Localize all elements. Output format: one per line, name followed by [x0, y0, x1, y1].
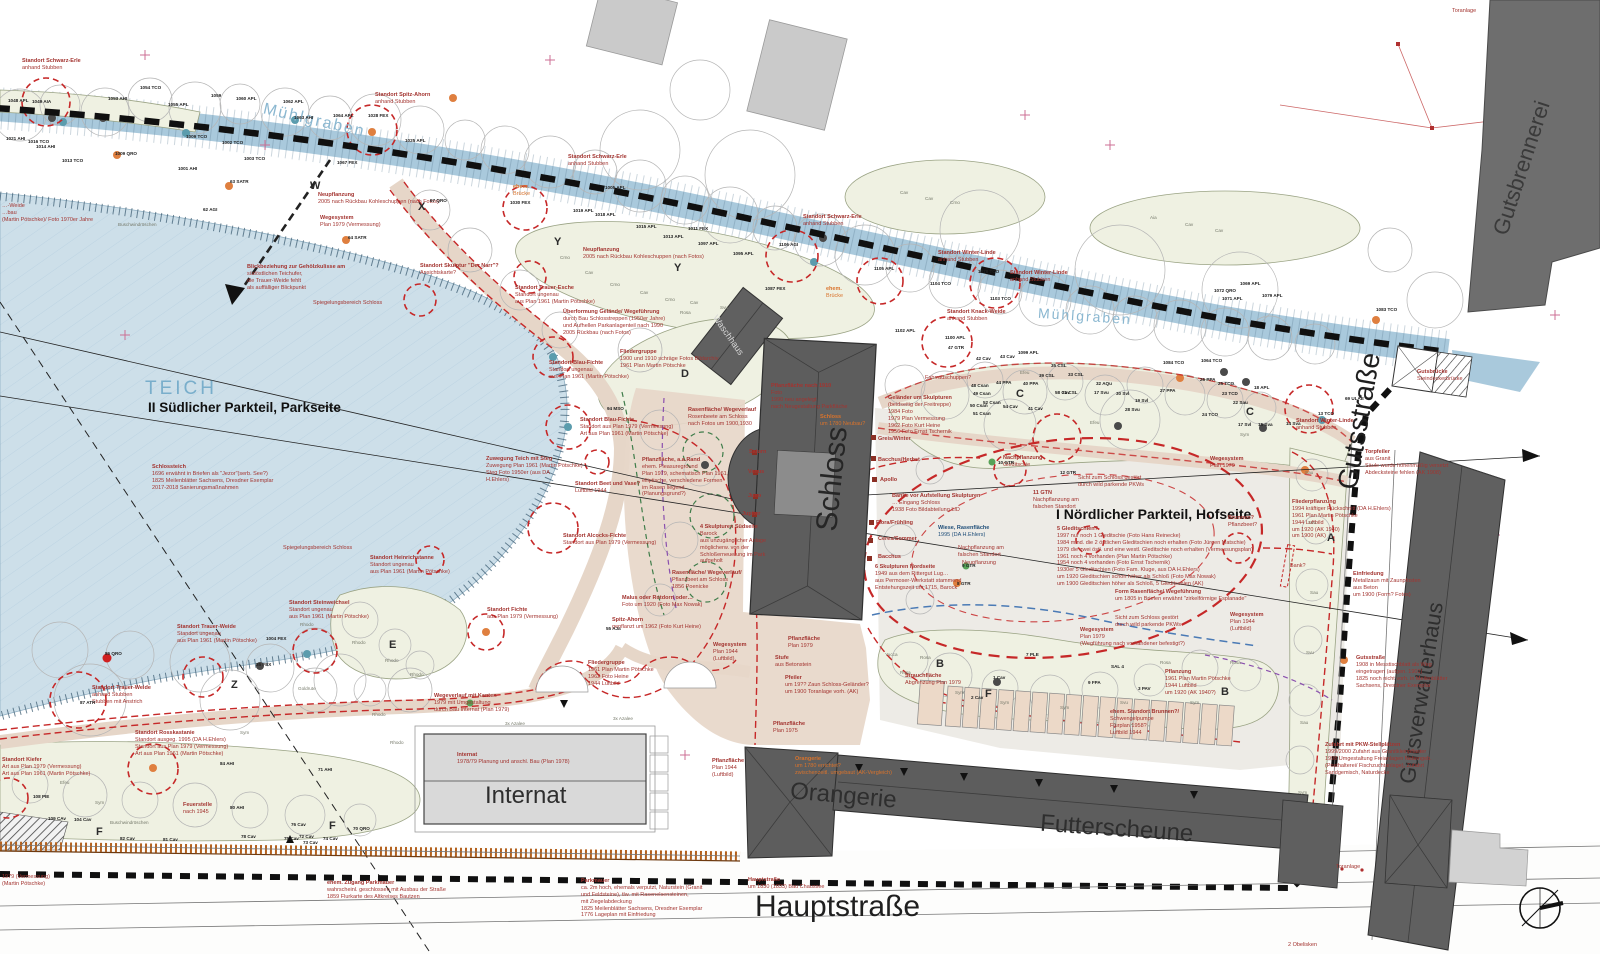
annotation-pflanzfläche: PflanzflächePlan 1944(Luftbild) [712, 758, 744, 779]
tree-tag: SAL 4 [1111, 664, 1124, 669]
tree-tag: 81 Cav [163, 837, 178, 842]
annotation-rasenfläche-wegeverlauf: Rasenfläche/ WegeverlaufRosenbeete am Sc… [688, 407, 756, 428]
annotation-note-75: 2 Obelisken [1288, 942, 1317, 949]
zone-letter-c: C [1246, 406, 1254, 418]
annotation-standort-rosskastanie: Standort RosskastanieStandort ausgeg. 19… [135, 730, 228, 758]
sculpture-label-bacchus-herbst: Bacchus/Herbst [878, 457, 920, 464]
annotation-schlossteich: Schlossteich1696 erwähnt in Briefen als … [152, 464, 273, 492]
annotation-pflanzfläche: PflanzflächePlan 1979 [788, 636, 820, 650]
tree-tag: 1001 AHI [178, 166, 197, 171]
tree-tag: 1095 APL [733, 251, 754, 256]
species-label: Crno [560, 255, 570, 260]
tree-tag: 55 AJa [606, 626, 621, 631]
annotation-note-55: Sicht zum Schloss gestörtdurch wild park… [1078, 475, 1144, 489]
annotation-pflanzfläche: PflanzflächePlan 1975 [773, 721, 805, 735]
annotation-standort-steinweichsel: Standort SteinweichselStandort ungenauau… [289, 600, 369, 621]
annotation-überformung-gelände-wegeführung: Überformung Gelände/ Wegeführungdurch Ba… [563, 309, 665, 337]
annotation-parkmauer: Parkmauerca. 2m hoch, ehemals verputzt, … [581, 878, 702, 919]
species-label: Svu [1120, 700, 1128, 705]
annotation-5-gleditschien-: 5 Gleditschien?1997 nur noch 1 Gleditsch… [1057, 526, 1253, 588]
species-label: Rhodo [390, 740, 404, 745]
species-label: Cav [1185, 222, 1193, 227]
tree-tag: 1014 AHI [36, 144, 55, 149]
tree-tag: 33 CSL [1068, 372, 1084, 377]
species-label: 3x Azalee [505, 721, 525, 726]
species-label: Rhodo [352, 640, 366, 645]
tree-tag: 74 Cav [323, 836, 338, 841]
annotation-form-rasenfläche-wegeführung: Form Rasenfläche/ Wegeführungum 1805 in … [1115, 589, 1246, 603]
species-label: Goldrute [298, 686, 316, 691]
tree-tag: 1103 TCO [990, 296, 1011, 301]
annotation-zuwegung-teich-mit-steg: Zuwegung Teich mit StegZuwegung Plan 196… [486, 456, 583, 484]
annotation-note-77: Fahrradschuppen? [925, 375, 971, 382]
species-label: Cav [900, 190, 908, 195]
sculpture-label-venus: Venus [748, 469, 764, 476]
species-label: Svu [1308, 520, 1316, 525]
pond-label: TEICH [145, 378, 217, 400]
annotation-standort-trauer-esche: Standort Trauer-EscheStandort ungenauaus… [515, 285, 595, 306]
tree-tag: 70 QRO [353, 826, 370, 831]
tree-tag: 28 Svu [1125, 407, 1140, 412]
annotation-ehem-: ehem.Brücke [513, 184, 530, 198]
annotation-standort-winter-linde: Standort Winter-Lindeanhand Stubben [1010, 270, 1068, 284]
annotation-pflanzfläche-nach-1910: Pflanzfläche nach 1910Foto1990 neu angel… [771, 383, 847, 411]
tree-tag: 40 PPA [1023, 381, 1039, 386]
annotation-pfeiler: Pfeilerum 19?? Zaun Schloss-Geländer?um … [785, 675, 869, 696]
tree-tag: 1063 AHI [294, 115, 313, 120]
annotation-spitz-ahorn: Spitz-Ahorngepflanzt um 1962 (Foto Kurt … [612, 617, 701, 631]
tree-tag: 94 MSO [607, 406, 624, 411]
tree-tag: 1002 TCO [222, 140, 243, 145]
annotation-standort-blau-fichte: Standort Blau-FichteStandort aus Plan 19… [580, 417, 673, 438]
tree-tag: 41 Cav [1028, 406, 1043, 411]
tree-tag: 1106 AGI [779, 242, 798, 247]
annotation-standort-schwarz-erle: Standort Schwarz-Erleanhand Stubben [568, 154, 627, 168]
tree-tag: 47 GTR [948, 345, 964, 350]
tree-tag: 1064 APL [333, 113, 354, 118]
tree-tag: 25 TCO [1218, 381, 1234, 386]
species-label: Rhodo [410, 672, 424, 677]
annotation-note-7: Spiegelungsbereich Schloss [313, 300, 382, 307]
annotation-6-skulpturen-nordseite: 6 Skulpturen Nordseite1949 aus dem Ritte… [875, 564, 961, 592]
section-north-label: I Nördlicher Parkteil, Hofseite [1056, 506, 1251, 522]
tree-tag: 15 Sva [1258, 422, 1273, 427]
annotation-blickbeziehung-zur-gehölzkulisse-am: Blickbeziehung zur Gehölzkulisse amsüdös… [247, 264, 345, 292]
tree-tag: 80 AHI [230, 805, 244, 810]
annotation-malus-oder-rotdorn-oder-: Malus oder Rotdorn oder…Foto um 1920 (Fo… [622, 595, 702, 609]
tree-tag: 9 GTR [962, 563, 976, 568]
zone-letter-f: F [329, 820, 336, 832]
species-label: Cav [925, 196, 933, 201]
annotation-note-8: Spiegelungsbereich Schloss [283, 545, 352, 552]
species-label: Buschwindröschen [118, 222, 157, 227]
zone-letter-z: Z [231, 679, 238, 691]
tree-tag: 1100 APL [945, 335, 965, 340]
annotation-note-74: Toranlage [1336, 864, 1360, 871]
tree-tag: 1009 QRO [115, 151, 137, 156]
annotation-feuerstelle: Feuerstellenach 1945 [183, 802, 212, 816]
tree-tag: 1049 AIA [32, 99, 51, 104]
tree-tag: 86 QRO [105, 651, 122, 656]
species-label: Sau [1310, 590, 1318, 595]
annotation-standort-winter-linde: Standort Winter-Lindeanhand Stubben [1296, 418, 1354, 432]
tree-tag: 1054 TCO [140, 85, 161, 90]
annotation-gutsbrücke: GutsbrückeSteindeckerbrücke [1417, 369, 1463, 383]
annotation-note-51: Nachpflanzung amfalschen Standort [958, 545, 1004, 559]
tree-tag: 109 CAv [48, 816, 66, 821]
tree-tag: 1019 APL [573, 208, 594, 213]
annotation-strauchfläche: StrauchflächeAbgrenzung Plan 1979 [905, 673, 961, 687]
species-label: Svu [720, 305, 728, 310]
species-label: Cav [640, 290, 648, 295]
species-label: Yucca [885, 652, 898, 657]
tree-tag: 1084 TCO [1163, 360, 1184, 365]
annotation-neupflanzung: Neupflanzung2005 nach Rückbau Kohleschup… [583, 247, 704, 261]
species-label: Rosa [1160, 660, 1171, 665]
tree-tag: 75 Cav [284, 836, 299, 841]
annotation-orangerie: Orangerieum 1780 errichtet?zwischenzeitl… [795, 756, 892, 777]
annotation-wegesystem: WegesystemPlan 1944(Luftbild) [713, 642, 747, 663]
tree-tag: 1104 TCO [930, 281, 951, 286]
tree-tag: 19 Svl [1135, 398, 1148, 403]
species-label: Sym [1298, 790, 1307, 795]
annotation-schloss: Schlossum 1780 Neubau? [820, 414, 865, 428]
annotation-bänke-vor-aufstellung-skulpturen: Bänke vor Aufstellung Skulpturen… Eingan… [892, 493, 980, 514]
annotation-fliederpflanzung: Fliederpflanzung1994 kräftiger Rückschni… [1292, 499, 1391, 540]
annotation-fliedergruppe: Fliedergruppe1961 Plan Martin Pötschke19… [588, 660, 654, 688]
tree-tag: 35 CSL [1051, 363, 1067, 368]
tree-tag: 1071 APL [1222, 296, 1243, 301]
species-label: Rosa [900, 670, 911, 675]
annotation-torpfeiler: Torpfeileraus GranitSäule wurde höhenmäß… [1365, 449, 1448, 477]
tree-tag: 71 AHI [318, 767, 332, 772]
sculpture-label-saturn: Saturn [749, 449, 766, 456]
species-label: Sym [1240, 432, 1249, 437]
sculpture-label-apollo: Apollo [880, 477, 897, 484]
annotation-standort-fichte: Standort Fichteaus Plan 1979 (Vermessung… [487, 607, 558, 621]
species-label: Sym [955, 690, 964, 695]
zone-letter-x: X [418, 201, 425, 213]
tree-tag: 13 TCO [1318, 411, 1334, 416]
species-label: Rhodo [300, 622, 314, 627]
annotation-standort-skulptur-der-narr-: Standort Skulptur "Der Narr"?Ansichtskar… [420, 263, 499, 277]
annotation-wiese-rasenfläche: Wiese, Rasenfläche1995 (DA H.Ehlers) [938, 525, 989, 539]
annotation-gutsstraße: Gutsstraße1908 in Messtischblatt als Weg… [1356, 655, 1447, 689]
annotation-standort-knack-weide: Standort Knack-Weideanhand Stubben [947, 309, 1006, 323]
tree-tag: 1048 APL [8, 98, 29, 103]
annotation-einfriedung: EinfriedungMetallzaun mit Zaunpfostenaus… [1353, 571, 1421, 599]
tree-tag: 1015 APL [636, 224, 657, 229]
annotation-geländer-um-skulpturen: Geländer um Skulpturen(beidseitig der Fr… [888, 395, 952, 436]
species-label: Crno [665, 297, 675, 302]
tree-tag: 85 FEX [256, 662, 271, 667]
annotation-wegesystem: WegesystemPlan 1944(Luftbild) [1230, 612, 1264, 633]
tree-tag: 104 Cav [74, 817, 91, 822]
tree-tag: 39 CSL [1039, 373, 1055, 378]
annotation-4-skulpturen-südseite: 4 Skulpturen SüdseiteBarockaus unzugängl… [700, 524, 766, 565]
annotation-brunnen-: Brunnen?Pflanzbeet? [1228, 515, 1257, 529]
tree-tag: 48 Csan [971, 383, 989, 388]
sculpture-label-bacchus: Bacchus [878, 554, 901, 561]
tree-tag: 17 Svl [1238, 422, 1251, 427]
annotation-wegeverlauf-mit-kanten: Wegeverlauf mit Kanten1979 mit Umgestalt… [434, 693, 509, 714]
tree-tag: 44 PPA [996, 380, 1012, 385]
park-master-plan: TEICH II Südlicher Parkteil, Parkseite I… [0, 0, 1600, 954]
zone-letter-e: E [389, 639, 396, 651]
tree-tag: 3 PAV [1138, 686, 1151, 691]
tree-tag: 32 AQu [1096, 381, 1112, 386]
zone-letter-w: W [310, 180, 320, 192]
annotation-standort-beet-und-vase-: Standort Beet und Vase?Luftbild 1944 [575, 481, 640, 495]
sculpture-label-ceres-sommer: Ceres/Sommer [878, 536, 917, 543]
sculpture-label-flora-fr-hling: Flora/Frühling [876, 520, 913, 527]
tree-tag: 78 Cav [241, 834, 256, 839]
tree-tag: 87 ATR [80, 700, 95, 705]
annotation-note-1: …-Weide…bau(Martin Pötschke)/ Foto 1970e… [2, 203, 93, 224]
species-label: Rosa [680, 310, 691, 315]
species-label: Sym [95, 800, 104, 805]
species-label: Aia [1150, 215, 1157, 220]
zone-letter-d: D [681, 368, 689, 380]
tree-tag: 18 APL [1254, 385, 1269, 390]
annotation-hauptstraße: Hauptstraßeum 1830 (1833) Bau Chaussee [748, 877, 824, 891]
tree-tag: 17 Svu [1094, 390, 1109, 395]
tree-tag: 69 ULAE [1345, 396, 1364, 401]
section-south-label: II Südlicher Parkteil, Parkseite [148, 400, 341, 415]
tree-tag: 67 QRO [430, 198, 447, 203]
tree-tag: 1055 APL [168, 102, 189, 107]
tree-tag: 7 PLE [1026, 652, 1039, 657]
tree-tag: 58 Cav [1055, 390, 1070, 395]
tree-tag: 1102 APL [895, 328, 915, 333]
tree-tag: 42 Cav [976, 356, 991, 361]
tree-tag: 1097 APL [698, 241, 719, 246]
species-label: Sau [1300, 720, 1308, 725]
tree-tag: 1060 APL [236, 96, 257, 101]
tree-tag: 24 TCO [1202, 412, 1218, 417]
annotation-ehem-zugang-parkmauer: ehem. Zugang Parkmauerwahrscheinl. gesch… [327, 880, 446, 901]
tree-tag: 23 TCD [1222, 391, 1238, 396]
annotation-zufahrt-mit-pkw-stellplätzen: Zufahrt mit PKW-Stellplätzen1999/2000 Zu… [1325, 742, 1432, 776]
species-label: Sym [1060, 705, 1069, 710]
tree-tag: 1004 FEX [266, 636, 286, 641]
tree-tag: 72 Cav [299, 834, 314, 839]
tree-tag: 1105 APL [874, 266, 894, 271]
annotation-standort-winter-linde: Standort Winter-Lindeanhand Stubben [938, 250, 996, 264]
tree-tag: 22 Sau [1233, 400, 1248, 405]
tree-tag: 1018 APL [595, 212, 616, 217]
tree-tag: 10 GTR [998, 460, 1014, 465]
tree-tag: 1005 APL [605, 185, 626, 190]
sculpture-label-greis-winter: Greis/Winter [878, 436, 911, 443]
tree-tag: 54 Cav [1003, 404, 1018, 409]
tree-tag: 1072 QRO [1214, 288, 1236, 293]
species-label: Svu [1306, 650, 1314, 655]
annotation-wegesystem: WegesystemPlan 1979(Wegführung nach vorh… [1080, 627, 1185, 648]
species-label: Crno [950, 200, 960, 205]
annotation-stufe: Stufeaus Betonstein [775, 655, 811, 669]
zone-letter-b: B [936, 658, 944, 670]
zone-letter-y: Y [554, 236, 561, 248]
tree-tag: 64 SATR [348, 235, 367, 240]
zone-letter-y: Y [674, 262, 681, 274]
annotation-wegesystem: WegesystemPlan 1979 (Vermessung) [320, 215, 381, 229]
tree-tag: 1064 TCO [1201, 358, 1222, 363]
species-label: 3x Azalee [613, 716, 633, 721]
tree-tag: 27 PPA [1160, 388, 1176, 393]
tree-tag: 76 Cav [291, 822, 306, 827]
tree-tag: 1025 APL [405, 138, 426, 143]
species-label: Sym [1190, 700, 1199, 705]
tree-tag: 1062 APL [283, 99, 304, 104]
south-east-buildings [1278, 795, 1528, 888]
tree-tag: 8 GTR [957, 581, 971, 586]
tree-tag: 1 Cav [993, 675, 1005, 680]
tree-tag: 1069 APL [1240, 281, 1261, 286]
tree-tag: 63 SATR [230, 179, 249, 184]
species-label: Rosa [1230, 660, 1241, 665]
zone-letter-f: F [96, 826, 103, 838]
tree-tag: 1009 TCO [186, 134, 207, 139]
tree-tag: 1079 APL [1262, 293, 1283, 298]
internat-building [415, 726, 655, 832]
species-label: Efeu [1020, 370, 1029, 375]
species-label: Efeu [60, 780, 69, 785]
annotation-fliedergruppe: Fliedergruppe1900 und 1910 schräge Fotos… [620, 349, 718, 370]
tree-tag: 84 AHI [220, 761, 234, 766]
annotation-standort-trauer-weide: Standort Trauer-Weideanhand StubbenStubb… [92, 685, 151, 706]
tree-tag: 1021 AHI [6, 136, 25, 141]
annotation-internat: Internat1978/79 Planung und anschl. Bau … [457, 752, 570, 766]
hauptstrasse-label: Hauptstraße [755, 890, 920, 924]
tree-tag: 108 PIE [33, 794, 49, 799]
annotation-note-33: 1979 (Vermessung)(Martin Pötschke) [2, 874, 50, 888]
annotation-standort-schwarz-erle: Standort Schwarz-Erleanhand Stubben [803, 214, 862, 228]
tree-tag: 1067 FEX [337, 160, 357, 165]
tree-tag: 62 AGI [203, 207, 217, 212]
species-label: Efeu [1090, 420, 1099, 425]
tree-tag: 1053 AHI [108, 96, 127, 101]
annotation-ehem-standort-brunnen-: ehem. Standort Brunnen?/SchwengelpumpeFl… [1110, 709, 1179, 737]
tree-tag: 1013 APL [663, 234, 684, 239]
annotation-ehem-: ehem.Brücke [826, 286, 843, 300]
tree-tag: 12 GTR [1060, 470, 1076, 475]
tree-tag: 30 Svl [1116, 391, 1129, 396]
zone-letter-a: A [1327, 532, 1335, 544]
tree-tag: 26 PPA [1200, 377, 1216, 382]
annotation-note-73: Toranlage [1452, 8, 1476, 15]
species-label: Rhodo [385, 658, 399, 663]
annotation-standort-blau-fichte: Standort Blau-FichteStandort ungenauaus … [549, 360, 629, 381]
tree-tag: 1087 FEX [765, 286, 785, 291]
tree-tag: 49 Csan [973, 391, 991, 396]
species-label: Crno [610, 282, 620, 287]
tree-tag: 9 FPA [1088, 680, 1101, 685]
tree-tag: 82 Cav [120, 836, 135, 841]
annotation-standort-alcocks-fichte: Standort Alcocks-FichteStandort aus Plan… [563, 533, 656, 547]
tree-tag: 1028 FEX [368, 113, 388, 118]
tree-tag: 1099 APL [1018, 350, 1039, 355]
annotation-wegesystem: WegesystemPlan 1979 [1210, 456, 1244, 470]
sculpture-label-jupiter: Jupiter [742, 511, 760, 518]
species-label: Sau [1305, 470, 1313, 475]
annotation-standort-schwarz-erle: Standort Schwarz-Erleanhand Stubben [22, 58, 81, 72]
tree-tag: 1083 TCO [1376, 307, 1397, 312]
tree-tag: 50 Csan [970, 403, 988, 408]
tree-tag: 1011 FEX [688, 226, 708, 231]
species-label: Rhodo [372, 712, 386, 717]
zone-letter-c: C [1016, 388, 1024, 400]
tree-tag: 1030 FEX [510, 200, 530, 205]
annotation-pflanzfläche-a-a-rand: Pflanzfläche, a.a.Randehem. Pleasuregrou… [642, 457, 728, 498]
internat-label: Internat [485, 782, 566, 810]
annotation-11-gtn: 11 GTNNachpflanzung amfalschen Standort [1033, 490, 1079, 511]
tree-tag: 2 Cav [971, 695, 983, 700]
zone-letter-f: F [985, 688, 992, 700]
species-label: Sym [1000, 700, 1009, 705]
species-label: Cav [690, 300, 698, 305]
sculpture-label-juno: Juno [748, 493, 761, 500]
tree-tag: 1003 TCO [244, 156, 265, 161]
tree-tag: 51 Csan [973, 411, 991, 416]
annotation-standort-trauer-weide: Standort Trauer-WeideStandort ungenauaus… [177, 624, 257, 645]
species-label: Sym [240, 730, 249, 735]
species-label: Cav [585, 270, 593, 275]
annotation-standort-heinrichstanne: Standort HeinrichstanneStandort ungenaua… [370, 555, 450, 576]
annotation-standort-kiefer: Standort KieferArt aus Plan 1979 (Vermes… [2, 757, 90, 778]
annotation-rasenfläche-wegeverlauf-: Rasenfläche/ Wegeverlauf/Pflanzbeet am S… [672, 570, 742, 591]
annotation-note-60: Bank? [1290, 563, 1306, 570]
species-label: Buschwindröschen [110, 820, 149, 825]
species-label: Cav [1215, 228, 1223, 233]
annotation-standort-spitz-ahorn: Standort Spitz-Ahornanhand Stubben [375, 92, 430, 106]
zone-letter-b: B [1221, 686, 1229, 698]
tree-tag: 73 Cav [303, 840, 318, 845]
tree-tag: 43 Cav [1000, 354, 1015, 359]
tree-tag: 1013 TCO [62, 158, 83, 163]
tree-tag: 1078 TCO [978, 269, 999, 274]
tree-tag: 14 Sva [1286, 421, 1301, 426]
species-label: Rosa [920, 655, 931, 660]
tree-tag: 1059 [211, 93, 221, 98]
